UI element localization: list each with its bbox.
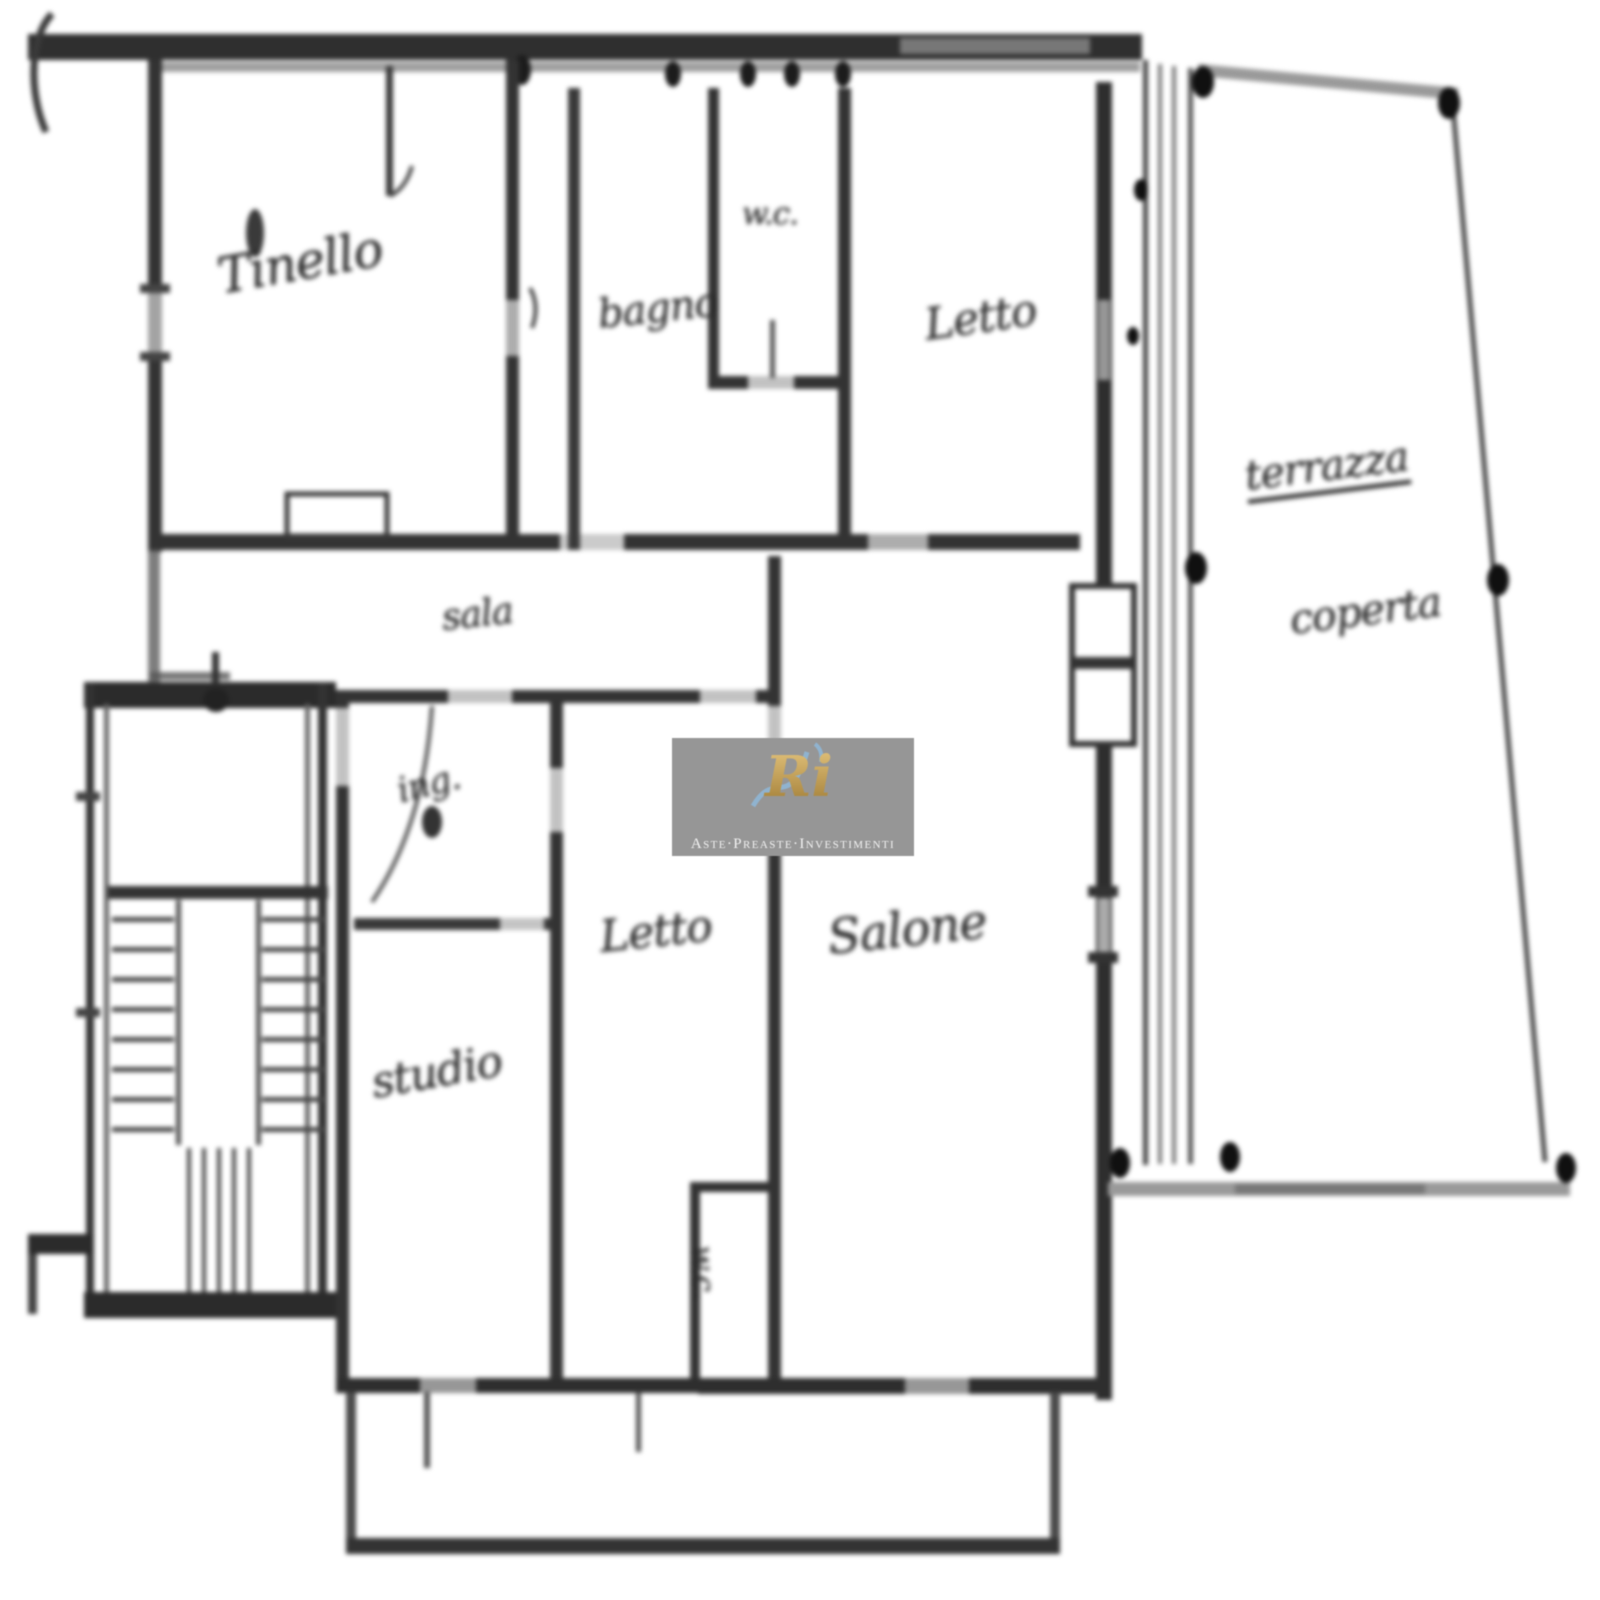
mid-wall [148,494,1080,552]
watermark-caption: Aste·Preaste·Investimenti [672,836,914,853]
shaft-bay [1072,586,1134,744]
room-label-wc-top: w.c. [742,196,798,232]
tinello-walls [140,60,412,552]
room-label-wc-bottom: w.c. [685,1245,722,1300]
scanned-floorplan-page: Tinello bagno w.c. Letto terrazza copert… [0,0,1600,1600]
top-exterior-wall [28,14,1142,132]
ri-monogram-logo: Ri [723,738,863,816]
stairwell [28,652,336,1318]
room-label-sala: sala [440,589,515,639]
letto-center-walls [548,556,783,1390]
watermark: Ri Aste·Preaste·Investimenti [672,738,914,856]
bottom-walls [336,1376,1110,1554]
ri-monogram-text: Ri [763,744,833,810]
